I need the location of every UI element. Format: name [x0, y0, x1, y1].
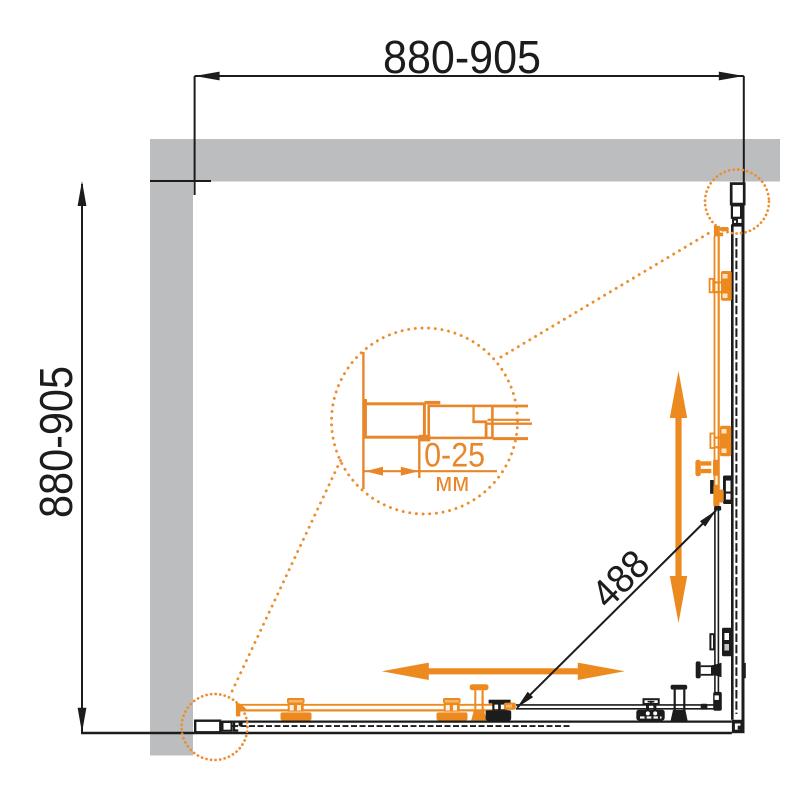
- svg-text:880-905: 880-905: [383, 31, 541, 83]
- svg-text:880-905: 880-905: [30, 366, 82, 518]
- svg-text:мм: мм: [435, 467, 469, 497]
